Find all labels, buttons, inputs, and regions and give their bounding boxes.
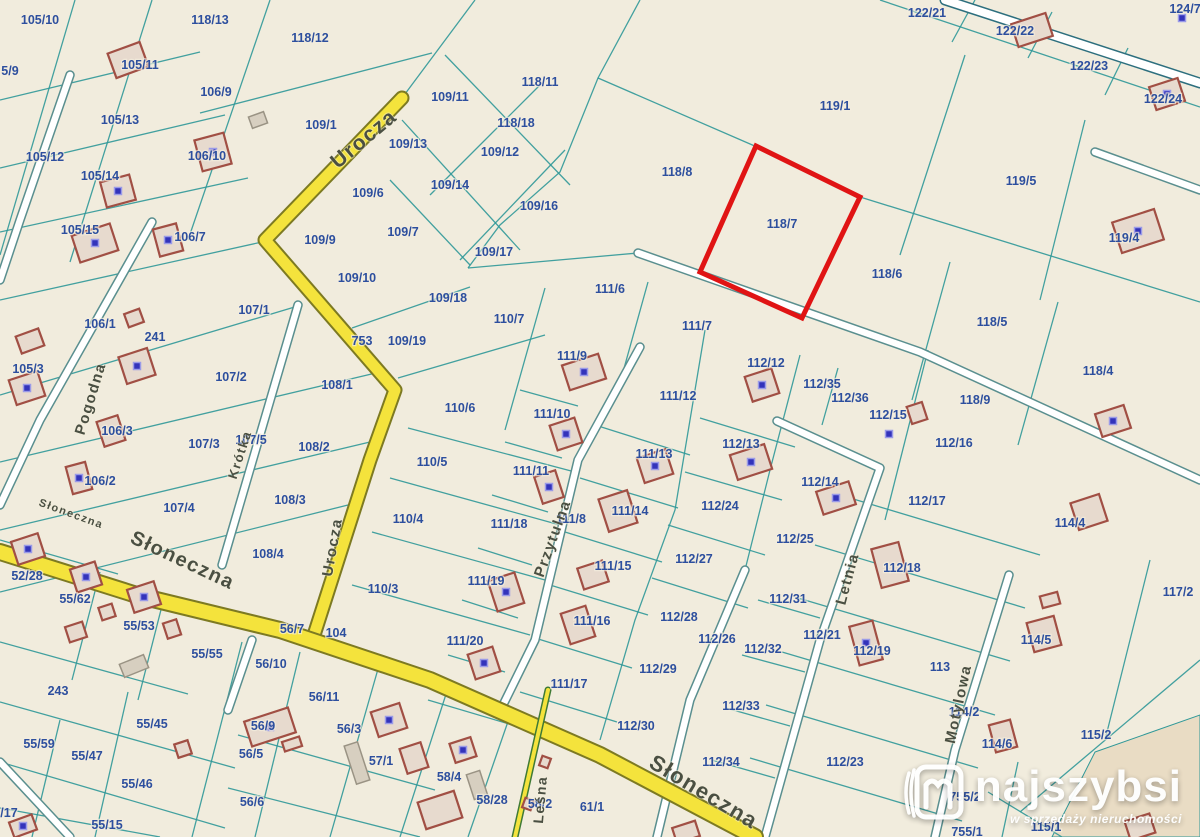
parcel-number-label: 109/9 [304, 233, 335, 247]
parcel-number-label: 109/6 [352, 186, 383, 200]
address-point-dot [115, 188, 122, 195]
parcel-number-label: 112/30 [617, 719, 655, 733]
parcel-number-label: 56/11 [309, 690, 340, 704]
parcel-number-label: 118/7 [767, 217, 798, 231]
parcel-number-label: 114/4 [1055, 516, 1086, 530]
parcel-number-label: 113 [930, 660, 950, 674]
parcel-number-label: 119/4 [1109, 231, 1140, 245]
parcel-number-label: 56/3 [337, 722, 361, 736]
address-point-dot [886, 431, 893, 438]
address-point-dot [652, 463, 659, 470]
parcel-number-label: 106/10 [188, 149, 226, 163]
parcel-number-label: 112/35 [803, 377, 841, 391]
parcel-number-label: 109/12 [481, 145, 519, 159]
parcel-number-label: 57/1 [369, 754, 393, 768]
parcel-number-label: 58/4 [437, 770, 461, 784]
logo-tagline-text: w sprzedaży nieruchomości [975, 813, 1182, 825]
parcel-number-label: 124/7 [1169, 2, 1200, 16]
parcel-number-label: 110/5 [417, 455, 448, 469]
address-point-dot [19, 823, 26, 830]
parcel-number-label: 117/2 [1163, 585, 1194, 599]
cadastral-map-viewport: 105/10118/13118/12105/115/9106/9109/1105… [0, 0, 1200, 837]
parcel-number-label: 111/13 [636, 447, 673, 461]
parcel-number-label: 111/20 [447, 634, 484, 648]
address-point-dot [23, 385, 30, 392]
parcel-number-label: 112/36 [831, 391, 869, 405]
parcel-number-label: 111/19 [468, 574, 505, 588]
najszybsi-logo: najszybsi w sprzedaży nieruchomości [899, 759, 1182, 825]
parcel-number-label: 107/3 [188, 437, 219, 451]
logo-brand-text: najszybsi [975, 765, 1182, 809]
parcel-number-label: 55/59 [23, 737, 54, 751]
parcel-number-label: 111/9 [557, 349, 587, 363]
parcel-number-label: 111/10 [534, 407, 571, 421]
parcel-number-label: 122/24 [1144, 92, 1182, 106]
parcel-number-label: 105/15 [61, 223, 99, 237]
parcel-number-label: 111/14 [612, 504, 649, 518]
parcel-number-label: 110/7 [494, 312, 525, 326]
parcel-number-label: 105/13 [101, 113, 139, 127]
parcel-number-label: 111/16 [574, 614, 611, 628]
parcel-number-label: 118/4 [1083, 364, 1114, 378]
parcel-number-label: 109/11 [431, 90, 469, 104]
parcel-number-label: 118/5 [977, 315, 1008, 329]
parcel-number-label: 109/17 [475, 245, 513, 259]
parcel-number-label: 106/2 [84, 474, 115, 488]
parcel-number-label: 112/13 [722, 437, 760, 451]
parcel-number-label: 110/3 [368, 582, 399, 596]
parcel-number-label: 119/5 [1006, 174, 1037, 188]
parcel-number-label: 56/10 [255, 657, 286, 671]
parcel-number-label: 55/47 [71, 749, 102, 763]
parcel-number-label: 109/13 [389, 137, 427, 151]
address-point-dot [748, 459, 755, 466]
parcel-number-label: 122/23 [1070, 59, 1108, 73]
parcel-number-label: 118/11 [522, 75, 559, 89]
address-point-dot [833, 495, 840, 502]
parcel-number-label: 109/1 [305, 118, 336, 132]
parcel-number-label: 118/13 [191, 13, 229, 27]
address-point-dot [75, 475, 82, 482]
address-point-dot [140, 594, 147, 601]
parcel-number-label: /17 [0, 806, 17, 820]
parcel-number-label: 109/14 [431, 178, 469, 192]
address-point-dot [165, 237, 172, 244]
address-point-dot [503, 589, 510, 596]
parcel-number-label: 112/29 [639, 662, 677, 676]
parcel-number-label: 114/5 [1021, 633, 1052, 647]
house-symbol [539, 756, 551, 768]
address-point-dot [563, 431, 570, 438]
address-point-dot [82, 574, 89, 581]
parcel-number-label: 112/31 [769, 592, 807, 606]
parcel-number-label: 112/26 [698, 632, 736, 646]
parcel-number-label: 109/16 [520, 199, 558, 213]
parcel-number-label: 55/55 [191, 647, 222, 661]
address-point-dot [581, 369, 588, 376]
parcel-number-label: 243 [48, 684, 69, 698]
parcel-number-label: 112/16 [935, 436, 973, 450]
house-symbol [174, 740, 192, 758]
address-point-dot [386, 717, 393, 724]
parcel-number-label: 112/18 [883, 561, 921, 575]
parcel-number-label: 5/9 [1, 64, 18, 78]
parcel-number-label: 112/28 [660, 610, 698, 624]
house-symbol [98, 604, 115, 621]
address-point-dot [546, 484, 553, 491]
parcel-number-label: 114/6 [982, 737, 1013, 751]
address-point-dot [759, 382, 766, 389]
parcel-number-label: 112/27 [675, 552, 713, 566]
parcel-number-label: 108/2 [298, 440, 329, 454]
parcel-number-label: 755/1 [951, 825, 982, 837]
parcel-number-label: 109/7 [387, 225, 418, 239]
parcel-number-label: 109/10 [338, 271, 376, 285]
parcel-number-label: 55/46 [121, 777, 152, 791]
parcel-number-label: 55/53 [123, 619, 154, 633]
parcel-number-label: 105/12 [26, 150, 64, 164]
parcel-number-label: 111/17 [551, 677, 588, 691]
parcel-number-label: 58/28 [476, 793, 507, 807]
parcel-number-label: 110/6 [445, 401, 476, 415]
parcel-number-label: 109/19 [388, 334, 426, 348]
parcel-number-label: 118/18 [497, 116, 535, 130]
parcel-number-label: 106/7 [174, 230, 205, 244]
parcel-number-label: 118/12 [291, 31, 329, 45]
parcel-number-label: 52/28 [11, 569, 42, 583]
najszybsi-logo-icon [899, 759, 965, 825]
parcel-number-label: 110/4 [393, 512, 424, 526]
parcel-number-label: 111/12 [660, 389, 697, 403]
parcel-number-label: 118/9 [960, 393, 991, 407]
parcel-number-label: 112/17 [908, 494, 946, 508]
parcel-number-label: 106/3 [101, 424, 132, 438]
cadastral-map-canvas: 105/10118/13118/12105/115/9106/9109/1105… [0, 0, 1200, 837]
parcel-number-label: 111/6 [595, 282, 625, 296]
parcel-number-label: 111/11 [513, 464, 549, 478]
parcel-number-label: 112/33 [722, 699, 760, 713]
parcel-number-label: 112/25 [776, 532, 814, 546]
address-point-dot [481, 660, 488, 667]
parcel-number-label: 105/10 [21, 13, 59, 27]
address-point-dot [24, 546, 31, 553]
parcel-number-label: 241 [145, 330, 166, 344]
parcel-number-label: 753 [352, 334, 373, 348]
address-point-dot [92, 240, 99, 247]
parcel-number-label: 107/1 [238, 303, 269, 317]
parcel-number-label: 56/9 [251, 719, 275, 733]
parcel-number-label: 107/4 [163, 501, 194, 515]
parcel-number-label: 112/24 [701, 499, 739, 513]
parcel-number-label: 55/45 [136, 717, 167, 731]
parcel-number-label: 122/22 [996, 24, 1034, 38]
address-point-dot [1110, 418, 1117, 425]
parcel-number-label: 106/9 [200, 85, 231, 99]
parcel-number-label: 112/14 [801, 475, 839, 489]
parcel-number-label: 112/12 [747, 356, 785, 370]
parcel-number-label: 105/14 [81, 169, 119, 183]
parcel-number-label: 104 [326, 626, 347, 640]
parcel-number-label: 122/21 [908, 6, 946, 20]
parcel-number-label: 55/62 [59, 592, 90, 606]
parcel-number-label: 56/6 [240, 795, 264, 809]
parcel-number-label: 118/6 [872, 267, 903, 281]
address-point-dot [133, 363, 140, 370]
parcel-number-label: 108/3 [274, 493, 305, 507]
parcel-number-label: 111/18 [491, 517, 528, 531]
parcel-number-label: 109/18 [429, 291, 467, 305]
parcel-number-label: 118/8 [662, 165, 693, 179]
parcel-number-label: 112/34 [702, 755, 740, 769]
parcel-number-label: 111/15 [595, 559, 632, 573]
parcel-number-label: 108/4 [252, 547, 283, 561]
parcel-number-label: 55/15 [91, 818, 122, 832]
parcel-number-label: 112/23 [826, 755, 864, 769]
parcel-number-label: 115/2 [1081, 728, 1112, 742]
parcel-number-label: 106/1 [84, 317, 115, 331]
parcel-number-label: 56/7 [280, 622, 304, 636]
parcel-number-label: 112/32 [744, 642, 782, 656]
parcel-number-label: 112/21 [803, 628, 841, 642]
address-point-dot [460, 747, 467, 754]
parcel-number-label: 61/1 [580, 800, 604, 814]
parcel-number-label: 56/5 [239, 747, 263, 761]
parcel-number-label: 112/15 [869, 408, 907, 422]
parcel-number-label: 119/1 [820, 99, 851, 113]
parcel-number-label: 111/7 [682, 319, 712, 333]
parcel-number-label: 107/2 [215, 370, 246, 384]
parcel-number-label: 112/19 [853, 644, 891, 658]
parcel-number-label: 105/11 [121, 58, 159, 72]
parcel-number-label: 105/3 [12, 362, 43, 376]
parcel-number-label: 108/1 [321, 378, 352, 392]
